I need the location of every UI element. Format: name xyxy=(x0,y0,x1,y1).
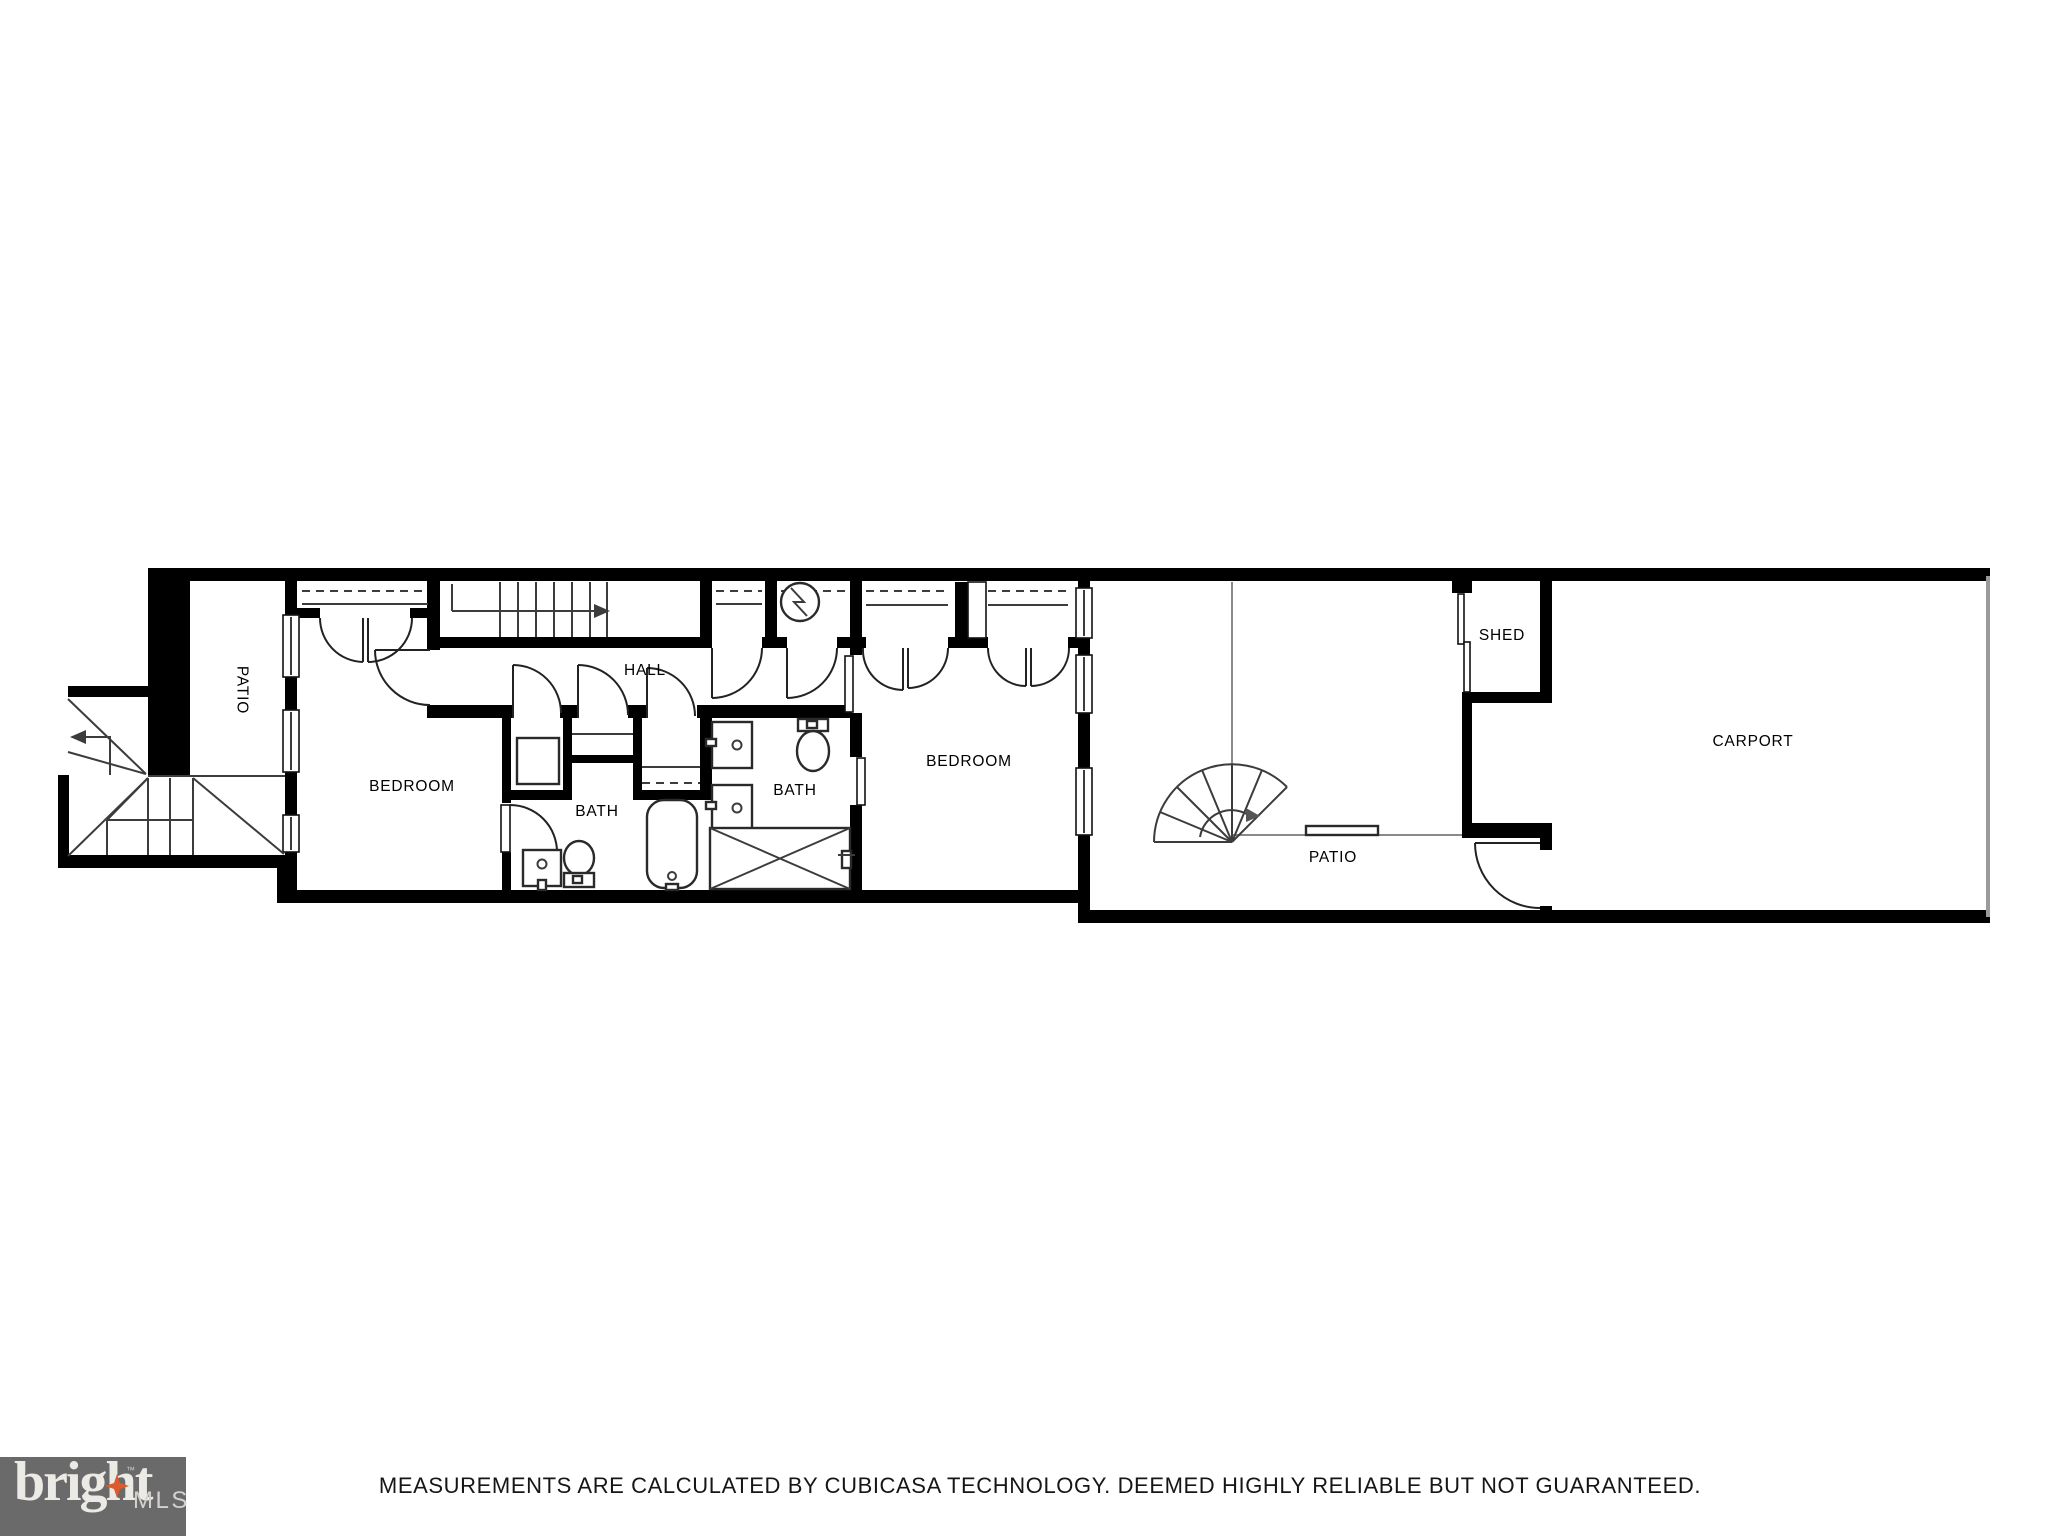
disclaimer-text: MEASUREMENTS ARE CALCULATED BY CUBICASA … xyxy=(16,1470,2048,1502)
door-arc xyxy=(1475,843,1540,908)
room-label-bath-1: BATH xyxy=(575,803,618,820)
trademark-symbol: ™ xyxy=(126,1465,135,1475)
window xyxy=(1076,768,1092,835)
water-heater-icon xyxy=(781,583,819,621)
door-arc xyxy=(1031,648,1069,686)
door-arc xyxy=(712,648,762,698)
door-arc xyxy=(578,665,628,718)
sliding-door xyxy=(857,758,865,805)
spiral-stair-icon xyxy=(1154,582,1462,842)
sink-icon xyxy=(523,850,561,890)
room-label-bath-2: BATH xyxy=(773,782,816,799)
room-label-bedroom-1: BEDROOM xyxy=(369,778,455,795)
window xyxy=(283,615,299,677)
door-arc xyxy=(320,618,363,662)
sliding-door xyxy=(845,656,853,712)
shower-icon xyxy=(710,828,855,889)
room-labels: PATIO BEDROOM BATH HALL BATH BEDROOM PAT… xyxy=(234,627,1794,866)
door-arc xyxy=(513,665,561,718)
sink-icon xyxy=(706,785,752,831)
stair-arrow xyxy=(70,730,86,744)
sliding-door xyxy=(1458,594,1470,692)
fixtures xyxy=(517,582,1462,890)
toilet-icon xyxy=(797,719,829,771)
door-arc xyxy=(787,648,837,698)
door-arc xyxy=(988,648,1026,686)
sink-icon xyxy=(706,722,752,768)
staircase-icon xyxy=(452,582,610,637)
door-arc xyxy=(908,648,948,688)
brand-name-secondary: MLS xyxy=(133,1487,190,1515)
star-icon xyxy=(104,1473,130,1499)
room-label-patio-2: PATIO xyxy=(1309,849,1357,866)
bathtub-icon xyxy=(647,800,697,890)
room-label-hall: HALL xyxy=(624,662,666,679)
bench xyxy=(1306,826,1378,835)
floorplan: PATIO BEDROOM BATH HALL BATH BEDROOM PAT… xyxy=(0,0,2048,1536)
door-arc xyxy=(375,650,430,705)
door-arc xyxy=(501,805,557,852)
brand-logo: bright ™ MLS xyxy=(0,1457,186,1536)
walls xyxy=(58,568,1990,923)
room-label-carport: CARPORT xyxy=(1712,733,1793,750)
brand-name-primary: bright xyxy=(14,1443,151,1522)
window xyxy=(283,710,299,772)
washer-icon xyxy=(517,738,559,784)
room-label-patio-1: PATIO xyxy=(234,666,251,714)
window xyxy=(1076,588,1092,638)
room-label-shed: SHED xyxy=(1479,627,1525,644)
door-arc xyxy=(863,648,903,690)
window xyxy=(283,815,299,852)
toilet-icon xyxy=(564,841,594,887)
window xyxy=(1076,655,1092,713)
room-label-bedroom-2: BEDROOM xyxy=(926,753,1012,770)
